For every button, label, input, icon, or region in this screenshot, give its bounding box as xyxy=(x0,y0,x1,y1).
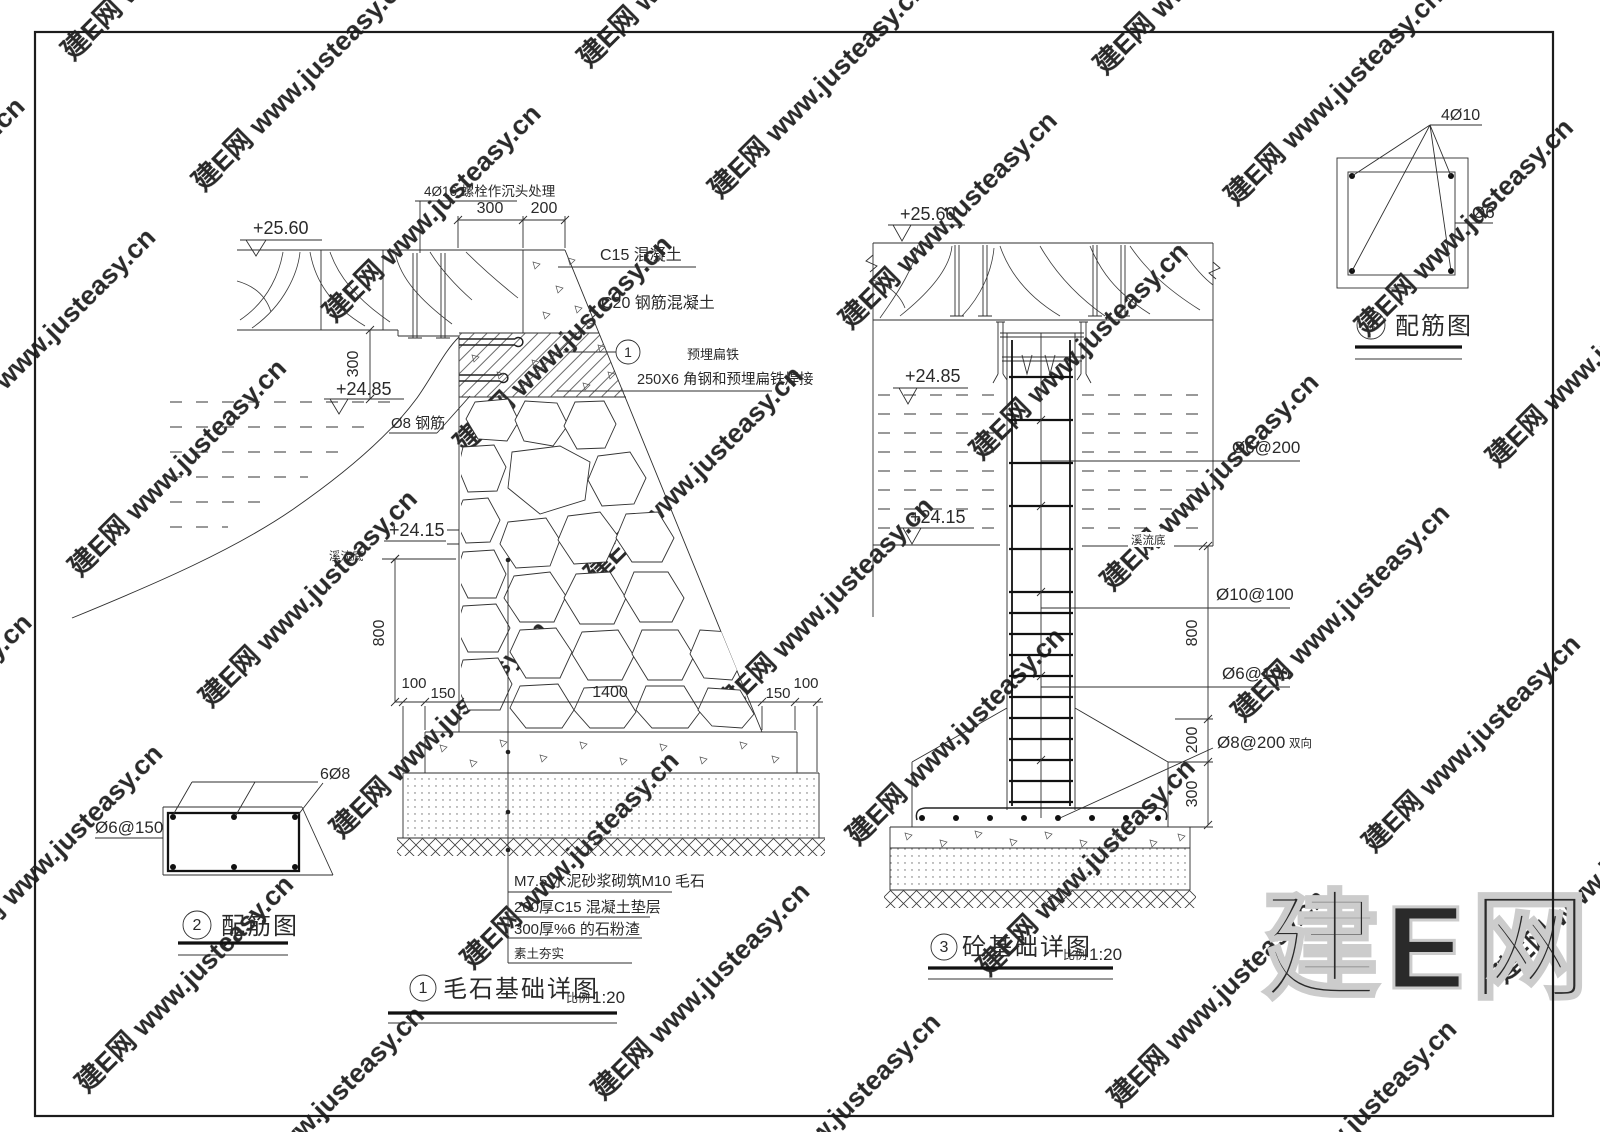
d4-top-label: 4Ø10 xyxy=(1441,107,1480,124)
rebar-label: Ø8@200 xyxy=(1217,733,1285,752)
detail-title: 配筋图 xyxy=(1395,313,1473,340)
rebar-label-suffix: 双向 xyxy=(1289,736,1312,750)
scale-value: 1:20 xyxy=(1089,945,1122,964)
ref-dot xyxy=(506,558,511,563)
d1-ground-hatch xyxy=(397,838,825,856)
elevation-label: +24.85 xyxy=(905,366,961,386)
layer-note: 200厚C15 混凝土垫层 xyxy=(514,899,661,916)
c20-label: C20 钢筋混凝土 xyxy=(601,294,715,312)
dim-label: 1400 xyxy=(592,684,628,701)
dim-label: 100 xyxy=(793,675,818,692)
detail-title: 配筋图 xyxy=(221,913,299,940)
stream-bottom-label: 溪流底 xyxy=(1131,533,1166,547)
scale-value: 1:20 xyxy=(592,988,625,1007)
angle-steel-label: 250X6 角钢和预埋扁铁焊接 xyxy=(637,371,813,388)
badge-number: 1 xyxy=(419,980,428,997)
d3-gravel-layer xyxy=(890,848,1190,890)
dim-label: 100 xyxy=(401,675,426,692)
dim-label: 800 xyxy=(1184,620,1201,647)
elevation-label: +24.15 xyxy=(389,520,445,540)
scale-label: 比例 xyxy=(566,991,590,1005)
dim-label: 150 xyxy=(765,685,790,702)
dim-label: 300 xyxy=(1184,781,1201,808)
ref-dot xyxy=(506,750,511,755)
d3-ground-hatch xyxy=(884,890,1196,908)
rebar-label: Ø6@200 xyxy=(1232,438,1300,457)
dim-label: 150 xyxy=(430,685,455,702)
dim-label: 200 xyxy=(1184,727,1201,754)
dim-label: 800 xyxy=(371,620,388,647)
layer-note: 素土夯实 xyxy=(514,946,564,961)
d1-gravel-layer xyxy=(403,773,819,838)
dim-label: 200 xyxy=(531,200,558,217)
rebar-label: Ø6@100 xyxy=(1222,664,1290,683)
watermark-big-text: 建E网 xyxy=(1262,882,1595,1014)
drawing-canvas: 建E网 www.justeasy.cn 建E网 xyxy=(0,0,1600,1132)
layer-note: M7.5 水泥砂浆砌筑M10 毛石 xyxy=(514,872,705,890)
elevation-label: +25.60 xyxy=(253,218,309,238)
layer-note: 300厚%6 的石粉渣 xyxy=(514,921,640,938)
badge-number: 4 xyxy=(1367,317,1376,334)
elevation-label: +24.85 xyxy=(336,379,392,399)
bolt-label: 4Ø16 螺栓作沉头处理 xyxy=(424,184,556,199)
scale-label: 比例 xyxy=(1063,948,1087,962)
d1-c20-hatch xyxy=(459,333,626,397)
elevation-label: +25.60 xyxy=(900,204,956,224)
d4-right-label: Ø6 xyxy=(1472,203,1495,222)
c15-label: C15 混凝土 xyxy=(600,246,682,264)
ref-dot xyxy=(506,848,511,853)
embed-label: 预埋扁铁 xyxy=(687,347,739,362)
d2-top-label: 6Ø8 xyxy=(320,766,350,783)
ref-dot xyxy=(506,810,511,815)
cad-sheet: 建E网 www.justeasy.cn 建E网 xyxy=(0,0,1600,1132)
dim-label: 300 xyxy=(345,351,362,378)
badge-number: 2 xyxy=(193,917,202,934)
badge-number: 3 xyxy=(940,939,949,956)
dim-label: 300 xyxy=(477,200,504,217)
rebar-label: Ø8 钢筋 xyxy=(391,415,445,432)
stream-bottom-label: 溪流底 xyxy=(329,549,364,563)
d2-left-label: Ø6@150 xyxy=(95,818,163,837)
elevation-label: +24.15 xyxy=(910,507,966,527)
rebar-label: Ø10@100 xyxy=(1216,585,1294,604)
callout-number: 1 xyxy=(624,344,632,360)
